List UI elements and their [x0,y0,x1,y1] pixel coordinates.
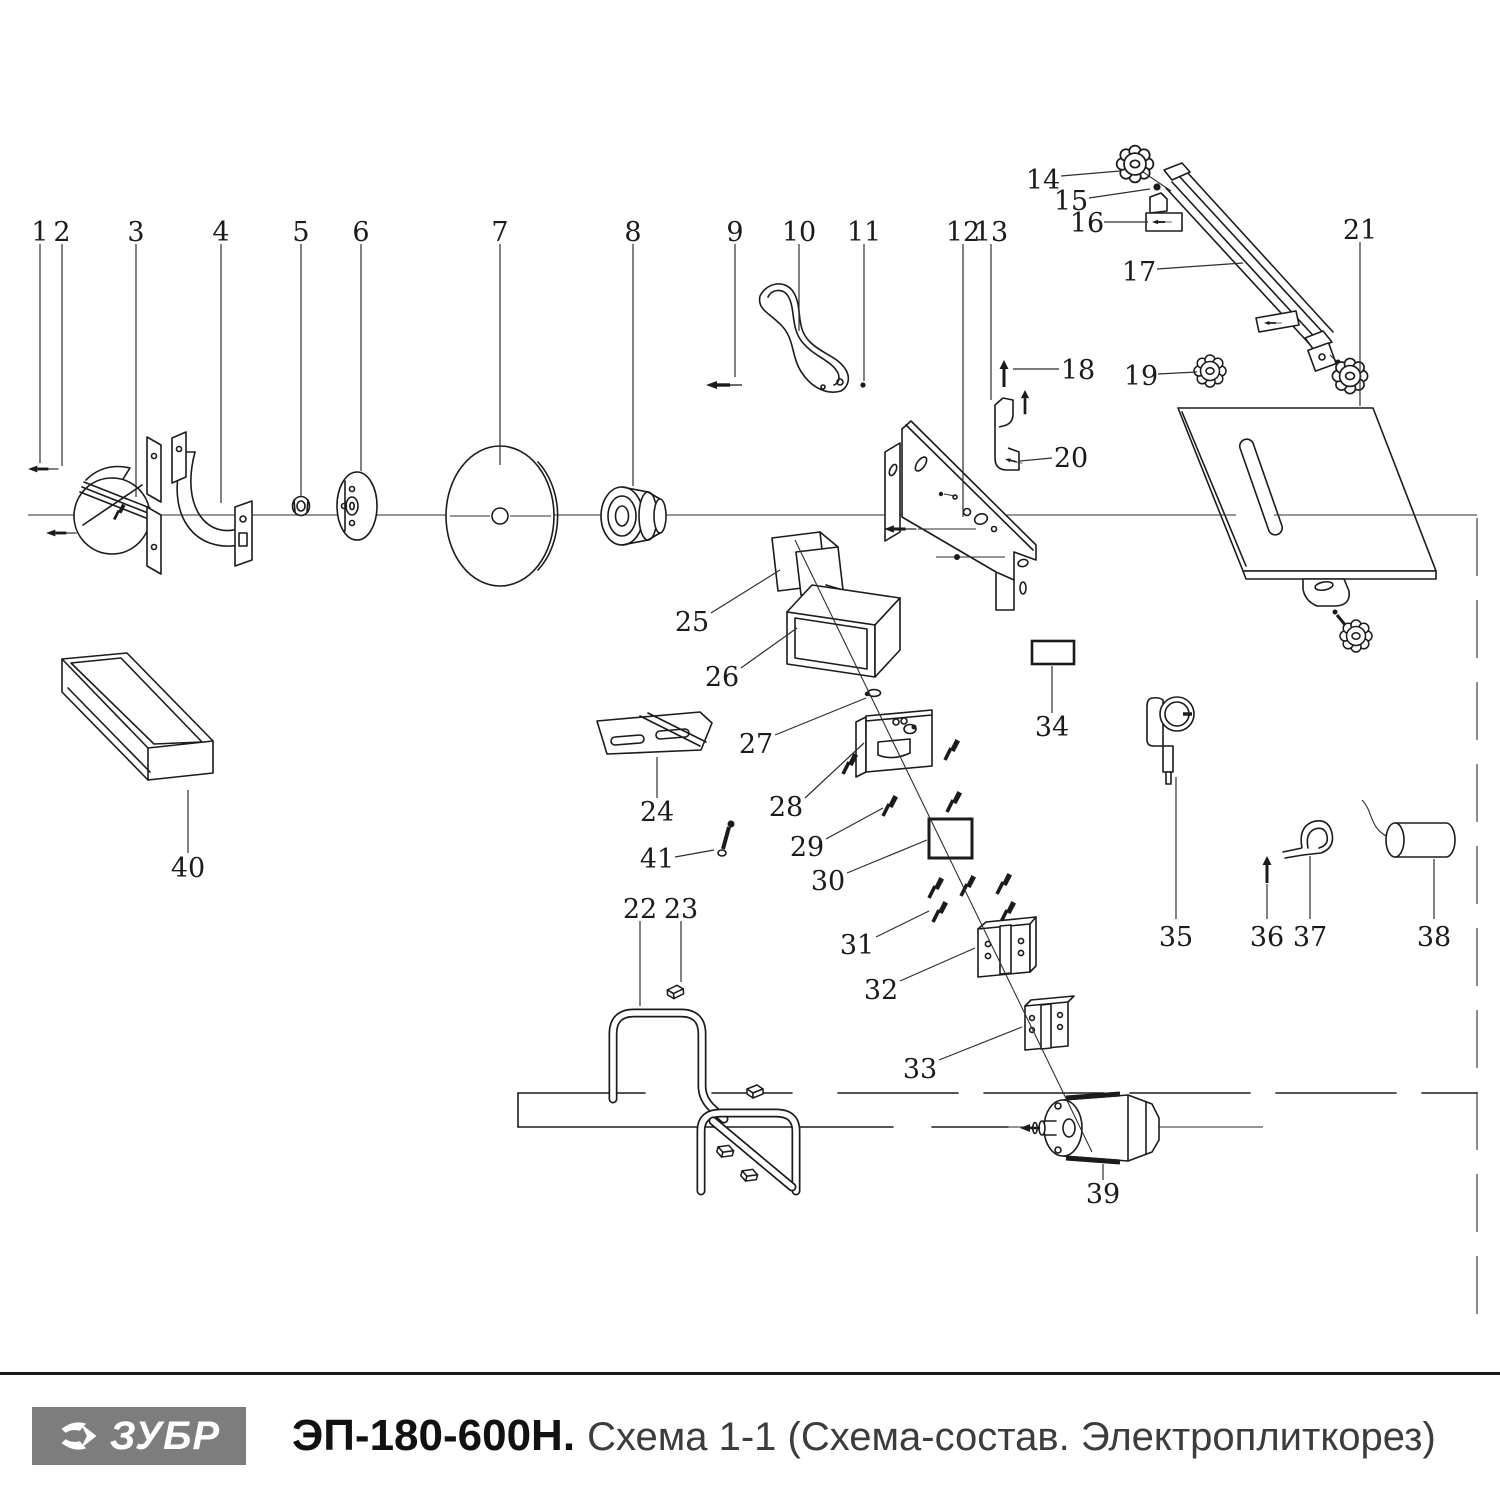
part-clip-23 [747,1085,763,1098]
callout-25: 25 [675,570,780,638]
part-nut [293,497,310,516]
svg-text:28: 28 [769,792,803,823]
svg-text:13: 13 [974,217,1008,248]
model-name: ЭП-180-600Н. [292,1411,575,1460]
callout-8: 8 [624,217,641,486]
callout-5: 5 [292,217,309,496]
svg-text:2: 2 [53,217,70,248]
svg-text:36: 36 [1250,922,1284,953]
part-flange-washer [337,472,377,540]
part-screw-36 [1263,856,1272,883]
callout-33: 33 [903,1027,1022,1085]
part-brush-holder-33 [1025,996,1074,1050]
svg-text:32: 32 [864,975,898,1006]
callout-28: 28 [769,743,864,823]
part-clip-23 [740,1167,759,1183]
svg-text:22: 22 [623,894,657,925]
callout-35: 35 [1159,777,1193,953]
part-guide-rail [1164,163,1368,394]
part-frame-30 [929,819,972,858]
part-plate-34 [1032,641,1074,664]
callout-17: 17 [1122,257,1243,288]
part-screws-1-2 [28,466,77,537]
part-knob-table [1340,620,1372,652]
svg-text:37: 37 [1293,922,1327,953]
svg-text:40: 40 [171,853,205,884]
part-screw-29 [883,795,898,816]
svg-text:3: 3 [127,217,144,248]
svg-text:11: 11 [847,217,881,248]
svg-text:25: 25 [675,607,709,638]
part-motor [1020,1094,1159,1162]
callout-4: 4 [212,217,229,503]
part-knob-14 [1117,146,1182,231]
callout-16: 16 [1070,208,1148,239]
part-clip-13 [995,360,1029,470]
callout-26: 26 [705,628,797,693]
callout-30: 30 [811,840,927,897]
exploded-diagram: 1234567891011121314151617181920212223242… [0,0,1500,1372]
part-knob-rail-end [1332,358,1367,393]
callout-19: 19 [1124,361,1197,392]
callout-34: 34 [1035,666,1069,743]
part-table [1178,408,1436,652]
zubr-logo: ЗУБР [32,1407,246,1465]
part-cutting-disc [446,446,558,586]
svg-text:23: 23 [664,894,698,925]
svg-text:34: 34 [1035,712,1069,743]
callouts-layer: 1234567891011121314151617181920212223242… [31,165,1451,1210]
callout-39: 39 [1086,1164,1120,1210]
callout-6: 6 [352,217,369,471]
svg-text:1: 1 [31,217,48,248]
callout-1: 1 [31,217,48,463]
part-clamp [1283,821,1333,858]
callout-3: 3 [127,217,144,497]
part-flange-set [601,487,666,545]
callout-11: 11 [847,217,881,381]
part-screw-27 [865,690,881,697]
part-pin-11 [860,382,865,387]
part-clip-23 [716,1143,735,1159]
callout-23: 23 [664,894,698,982]
svg-text:16: 16 [1070,208,1104,239]
brand-text: ЗУБР [110,1414,220,1459]
svg-text:4: 4 [212,217,229,248]
part-wrench [597,712,712,754]
svg-text:21: 21 [1343,215,1377,246]
svg-text:7: 7 [491,217,508,248]
part-bracket-16 [1150,193,1167,213]
svg-text:6: 6 [352,217,369,248]
callout-24: 24 [640,757,674,828]
part-switch-housing [787,585,900,677]
parts-diagram-page: 1234567891011121314151617181920212223242… [0,0,1500,1500]
part-ball-15 [1153,183,1160,190]
svg-text:19: 19 [1124,361,1158,392]
callout-32: 32 [864,948,975,1006]
svg-text:5: 5 [292,217,309,248]
svg-text:33: 33 [903,1054,937,1085]
svg-text:17: 17 [1122,257,1156,288]
svg-text:24: 24 [640,797,674,828]
callout-20: 20 [1020,443,1088,474]
svg-text:9: 9 [726,217,743,248]
svg-text:38: 38 [1417,922,1451,953]
zubr-arrow-icon [58,1415,100,1457]
part-power-plug [1147,697,1194,784]
part-water-tray [62,653,213,780]
callout-18: 18 [1013,355,1095,386]
footer: ЗУБР ЭП-180-600Н.Схема 1-1 (Схема-состав… [0,1372,1500,1500]
callout-31: 31 [840,911,929,961]
part-blade-guard-inner [172,432,252,566]
callout-9: 9 [726,217,743,377]
callout-40: 40 [171,790,205,884]
svg-text:10: 10 [782,217,816,248]
svg-text:35: 35 [1159,922,1193,953]
part-clip-23 [667,985,684,999]
callout-36: 36 [1250,884,1284,953]
callout-38: 38 [1417,859,1451,953]
svg-text:39: 39 [1086,1179,1120,1210]
part-pin-41 [718,821,735,857]
svg-text:26: 26 [705,662,739,693]
callout-2: 2 [53,217,70,466]
svg-text:29: 29 [790,832,824,863]
part-capacitor [1362,800,1455,857]
svg-text:20: 20 [1054,443,1088,474]
callout-22: 22 [623,894,657,1006]
part-guard-arm [760,284,849,392]
svg-text:41: 41 [640,844,674,875]
svg-text:31: 31 [840,930,874,961]
part-knob-19 [1194,355,1226,387]
schema-subtitle: Схема 1-1 (Схема-состав. Электроплиткоре… [587,1415,1436,1459]
part-bracket-box-25 [772,532,843,595]
svg-text:27: 27 [739,729,773,760]
callout-7: 7 [491,217,508,465]
schema-title: ЭП-180-600Н.Схема 1-1 (Схема-состав. Эле… [292,1411,1436,1461]
svg-text:30: 30 [811,866,845,897]
callout-41: 41 [640,844,714,875]
explosion-axis [795,540,1092,1152]
part-stand [518,985,1477,1191]
part-screw-9 [706,381,742,389]
part-brush-holder-32 [978,917,1036,977]
svg-text:18: 18 [1061,355,1095,386]
callout-37: 37 [1293,856,1327,953]
svg-text:8: 8 [624,217,641,248]
part-blade-guard-outer [74,437,161,574]
callout-27: 27 [739,698,866,760]
callout-29: 29 [790,808,883,863]
